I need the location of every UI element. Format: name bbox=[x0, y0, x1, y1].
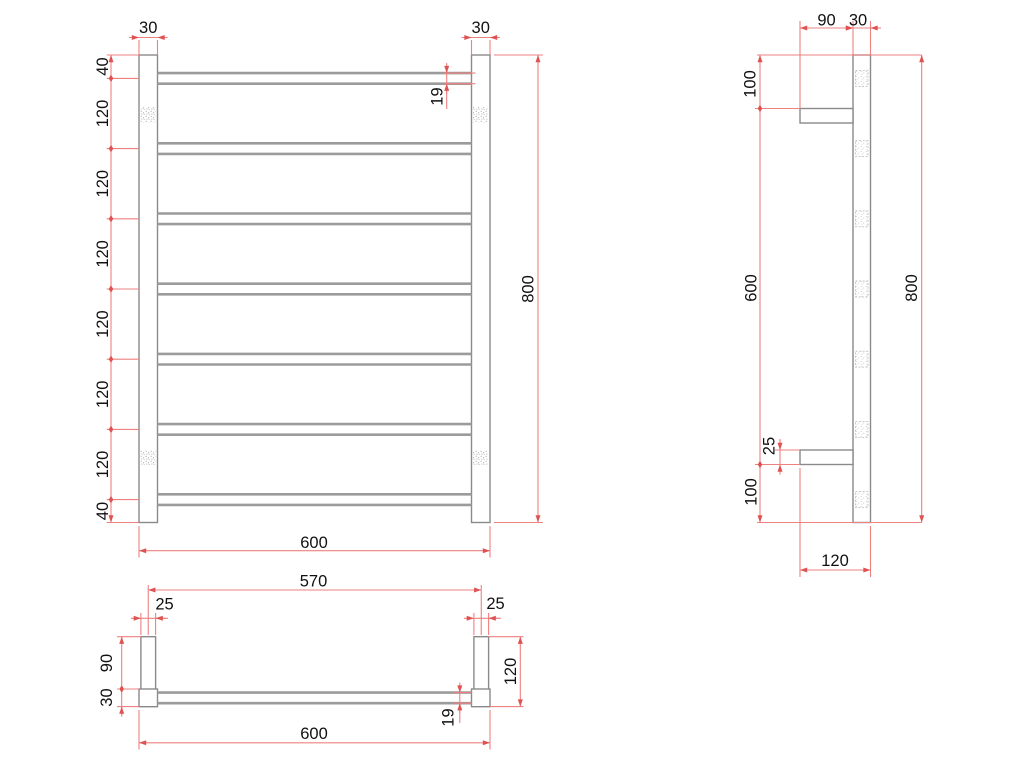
dim-tick bbox=[109, 215, 113, 222]
dim-arrow bbox=[800, 26, 807, 31]
side-view: 903010060010025800120 bbox=[742, 12, 925, 578]
dim-arrow bbox=[536, 515, 541, 522]
dim-arrow bbox=[139, 740, 146, 745]
dim-tick bbox=[109, 426, 113, 433]
mounting-stipple-3 bbox=[473, 107, 488, 123]
dim-arrow bbox=[863, 568, 870, 573]
dim-arrow bbox=[489, 616, 496, 621]
upper-bracket bbox=[800, 109, 853, 124]
dim-arrow bbox=[474, 588, 481, 593]
technical-drawing-svg: 3030401201201201201201204019800600903010… bbox=[0, 0, 1024, 760]
dim-arrow bbox=[467, 616, 474, 621]
dim-arrow bbox=[536, 55, 541, 62]
hidden-tube-end-3 bbox=[856, 211, 869, 227]
dim-bottom-rung-offset-label: 40 bbox=[94, 502, 112, 520]
dim-rail-depth-label: 30 bbox=[849, 12, 867, 30]
dim-arrow bbox=[778, 465, 783, 472]
dim-overall-width-label: 600 bbox=[300, 725, 328, 743]
dim-overall-height-label: 800 bbox=[520, 275, 538, 303]
dim-arrow bbox=[800, 568, 807, 573]
front-view: 3030401201201201201201204019800600 bbox=[94, 19, 543, 558]
dim-rung-pitch-2-label: 120 bbox=[94, 170, 112, 198]
dim-rung-pitch-3-label: 120 bbox=[94, 240, 112, 268]
dim-arrow bbox=[871, 26, 878, 31]
drawing-canvas: 3030401201201201201201204019800600903010… bbox=[0, 0, 1024, 760]
dim-rung-pitch-4-label: 120 bbox=[94, 310, 112, 338]
dim-tick bbox=[109, 285, 113, 292]
mounting-stipple-2 bbox=[141, 450, 156, 466]
dim-rung-pitch-5-label: 120 bbox=[94, 381, 112, 409]
dim-arrow bbox=[758, 55, 763, 62]
dim-tube-diameter-label: 19 bbox=[429, 87, 447, 105]
left-bracket-arm bbox=[141, 637, 156, 690]
dim-tick bbox=[758, 105, 762, 112]
dim-arrow bbox=[464, 35, 471, 40]
dim-tick bbox=[758, 461, 762, 468]
dim-arrow bbox=[119, 707, 124, 714]
dim-arrow bbox=[758, 515, 763, 522]
dim-arrow bbox=[518, 637, 523, 644]
views-root: 3030401201201201201201204019800600903010… bbox=[94, 12, 924, 750]
dim-bracket-centres-label: 570 bbox=[300, 573, 328, 591]
dim-tick bbox=[109, 145, 113, 152]
dim-overall-height-label: 800 bbox=[903, 274, 921, 302]
dim-bracket-width-right-label: 25 bbox=[486, 595, 504, 613]
dim-bracket-projection-label: 90 bbox=[817, 12, 835, 30]
plan-view: 5702525903012019600 bbox=[98, 573, 524, 750]
hidden-tube-end-6 bbox=[856, 421, 869, 437]
left-post-section bbox=[139, 689, 158, 707]
dim-post-width-right-label: 30 bbox=[472, 19, 490, 37]
dim-arrow bbox=[919, 515, 924, 522]
dim-rung-pitch-6-label: 120 bbox=[94, 451, 112, 479]
mounting-stipple-4 bbox=[473, 450, 488, 466]
right-bracket-arm bbox=[474, 637, 489, 690]
hidden-tube-end-4 bbox=[856, 281, 869, 297]
lower-bracket bbox=[800, 450, 853, 465]
dim-tube-diameter-label: 19 bbox=[440, 708, 458, 726]
dim-arrow bbox=[132, 35, 139, 40]
dim-top-rung-offset-label: 40 bbox=[94, 57, 112, 75]
dim-bracket-width-left-label: 25 bbox=[155, 596, 173, 614]
dim-bracket-arm-depth-label: 90 bbox=[98, 654, 116, 672]
mounting-stipple-1 bbox=[141, 107, 156, 123]
dim-bracket-spacing-label: 600 bbox=[743, 274, 761, 302]
dim-arrow bbox=[483, 740, 490, 745]
dim-arrow bbox=[139, 548, 146, 553]
dim-arrow bbox=[158, 35, 165, 40]
right-post-section bbox=[472, 689, 491, 707]
dim-bracket-thickness-label: 25 bbox=[761, 437, 779, 455]
dim-arrow bbox=[119, 637, 124, 644]
dim-arrow bbox=[156, 616, 163, 621]
dim-arrow bbox=[483, 548, 490, 553]
dim-post-width-left-label: 30 bbox=[139, 19, 157, 37]
dim-top-bracket-offset-label: 100 bbox=[742, 70, 760, 98]
dim-rung-pitch-1-label: 120 bbox=[94, 100, 112, 128]
hidden-tube-end-2 bbox=[856, 141, 869, 157]
hidden-tube-end-7 bbox=[856, 492, 869, 508]
dim-tick bbox=[109, 356, 113, 363]
dim-wall-to-front-label: 120 bbox=[821, 552, 849, 570]
dim-arrow bbox=[919, 55, 924, 62]
dim-post-depth-label: 30 bbox=[98, 688, 116, 706]
dim-arrow bbox=[148, 588, 155, 593]
dim-bottom-bracket-offset-label: 100 bbox=[743, 478, 761, 506]
dim-arrow bbox=[490, 35, 497, 40]
dim-arrow bbox=[134, 616, 141, 621]
dim-tick bbox=[120, 685, 124, 692]
dim-overall-width-label: 600 bbox=[300, 534, 328, 552]
hidden-tube-end-1 bbox=[856, 70, 869, 86]
hidden-tube-end-5 bbox=[856, 351, 869, 367]
dim-arrow bbox=[518, 699, 523, 706]
dim-overall-depth-label: 120 bbox=[502, 658, 520, 686]
